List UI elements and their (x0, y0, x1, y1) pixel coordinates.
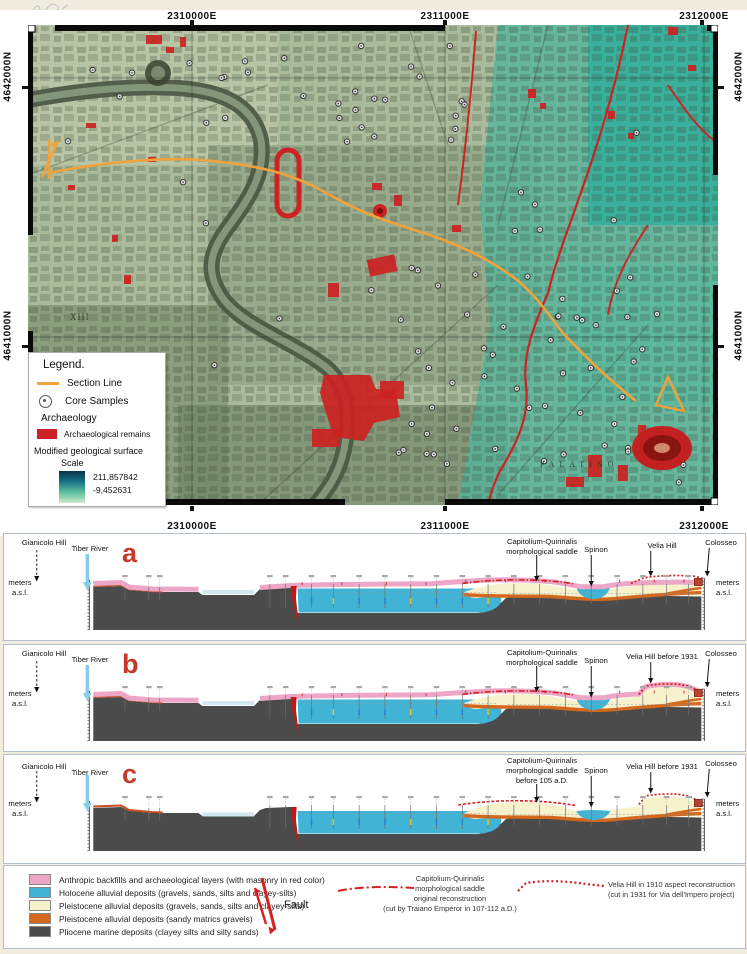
legend-title: Legend. (43, 359, 85, 371)
map-frame: 2310000E 2311000E 2312000E 2310000E 2311… (0, 10, 747, 536)
section-line-swatch (37, 382, 59, 385)
label-colosseo: Colosseo (692, 759, 747, 769)
axis-meters-asl-right: meters a.s.l. (716, 689, 747, 709)
saddle-reconstruction-caption: Capitolium-Quirinalis morphological sadd… (382, 874, 518, 914)
map-legend: Legend. Section Line Core Samples Archae… (28, 352, 166, 507)
coord-label: 2310000E (162, 521, 222, 532)
label-tiber-river: Tiber River (60, 768, 120, 778)
deposits-legend: Anthropic backfills and archaeological l… (3, 865, 746, 949)
legend-remains: Archaeological remains (64, 429, 150, 439)
legend-core-samples: Core Samples (65, 396, 128, 407)
section-letter-b: b (122, 649, 139, 680)
deposit-label: Pleistocene alluvial deposits (sandy mat… (59, 914, 253, 924)
figure-page: 2310000E 2311000E 2312000E 2310000E 2311… (0, 0, 747, 954)
deposit-label: Pliocene marine deposits (clayey silts a… (59, 927, 259, 937)
cross-section-a: Gianicolo Hill Tiber River a Capitolium-… (3, 533, 746, 641)
label-tiber-river: Tiber River (60, 544, 120, 554)
coord-label: 2312000E (674, 521, 734, 532)
coord-label: 4641000N (3, 306, 14, 366)
cross-section-b: Gianicolo Hill Tiber River b Capitolium-… (3, 644, 746, 752)
pliocene-swatch (29, 926, 51, 937)
axis-meters-asl-right: meters a.s.l. (716, 799, 747, 819)
axis-meters-asl-right: meters a.s.l. (716, 578, 747, 598)
coord-label: 2312000E (674, 11, 734, 22)
palatino-label: PALATINO (540, 460, 618, 469)
label-colosseo: Colosseo (692, 649, 747, 659)
coord-label: 2311000E (415, 521, 475, 532)
label-tiber-river: Tiber River (60, 655, 120, 665)
scale-gradient (59, 471, 85, 503)
coord-label: 4642000N (734, 47, 745, 107)
legend-section-line: Section Line (67, 378, 122, 389)
velia-reconstruction-caption: Velia Hill in 1910 aspect reconstruction… (608, 880, 747, 900)
fault-label: Fault (284, 899, 308, 911)
cross-section-c: Gianicolo Hill Tiber River c Capitolium-… (3, 754, 746, 864)
pleistocene-fine-swatch (29, 900, 51, 911)
coord-label: 4641000N (734, 306, 745, 366)
section-letter-c: c (122, 759, 137, 790)
section-letter-a: a (122, 538, 137, 569)
legend-surface: Modified geological surface (34, 446, 143, 456)
axis-meters-asl-left: meters a.s.l. (6, 689, 34, 709)
district-label: XIII (70, 312, 90, 322)
scale-max-value: 211,857842 (93, 471, 138, 484)
axis-meters-asl-left: meters a.s.l. (6, 578, 34, 598)
pleistocene-gravel-swatch (29, 913, 51, 924)
coord-label: 4642000N (3, 47, 14, 107)
dotted-line-sample (514, 878, 608, 894)
anthropic-swatch (29, 874, 51, 885)
holocene-swatch (29, 887, 51, 898)
label-colosseo: Colosseo (692, 538, 747, 548)
archaeology-swatch (37, 429, 57, 439)
legend-archaeology: Archaeology (41, 413, 97, 424)
scale-min-value: -9,452631 (93, 484, 138, 497)
legend-scale: Scale (61, 458, 84, 468)
axis-meters-asl-left: meters a.s.l. (6, 799, 34, 819)
core-sample-icon (39, 395, 52, 408)
